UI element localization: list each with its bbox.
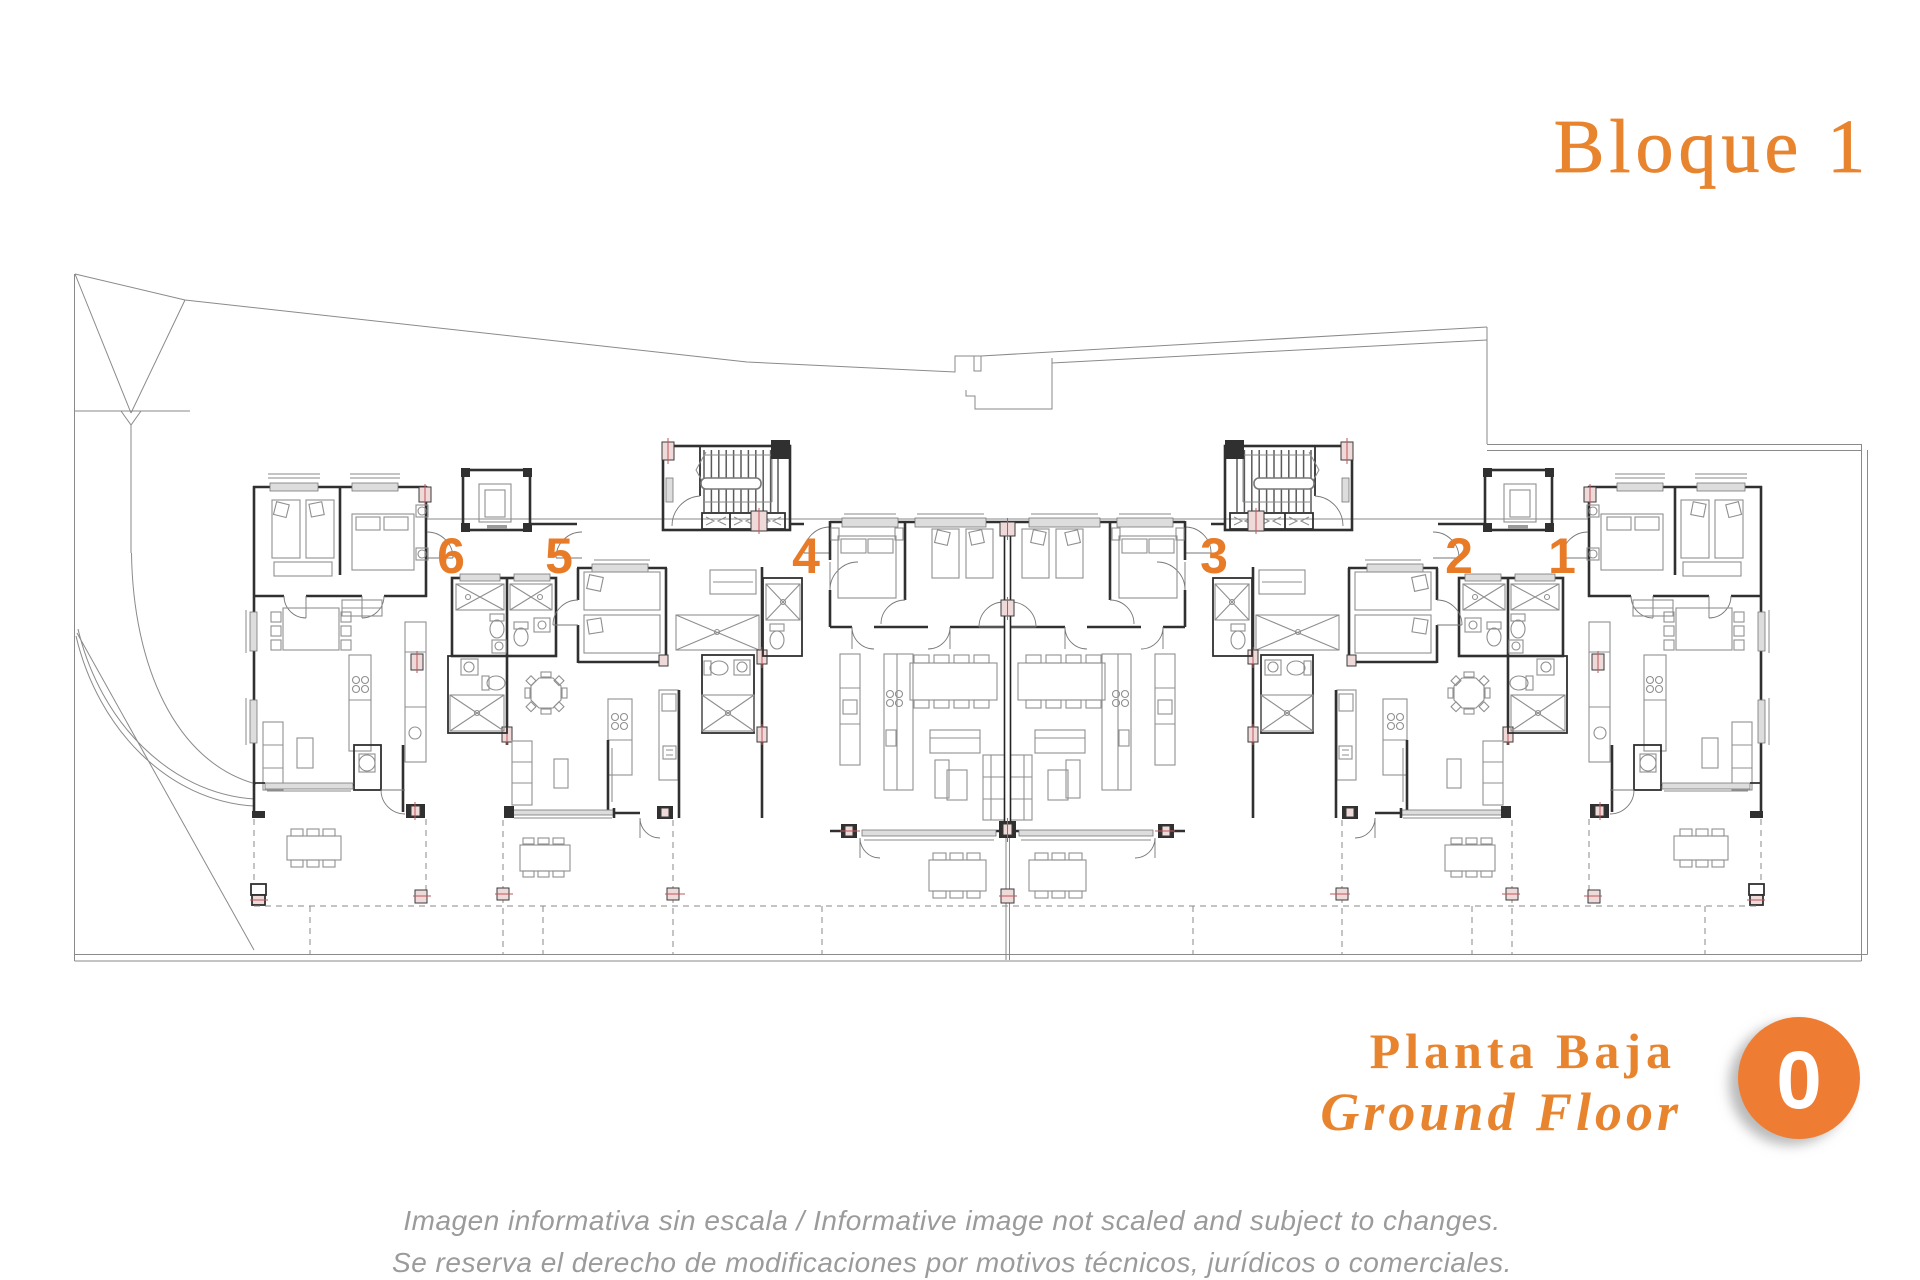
svg-text:1: 1 [1548,528,1576,584]
svg-text:3: 3 [1200,528,1228,584]
svg-text:Imagen informativa sin escala: Imagen informativa sin escala / Informat… [403,1205,1500,1236]
svg-text:6: 6 [437,528,465,584]
svg-text:4: 4 [792,528,820,584]
svg-text:Ground Floor: Ground Floor [1320,1082,1682,1142]
svg-text:Planta Baja: Planta Baja [1370,1023,1676,1079]
svg-text:Se reserva el derecho de modif: Se reserva el derecho de modificaciones … [392,1247,1512,1278]
svg-text:5: 5 [545,528,573,584]
svg-text:0: 0 [1776,1035,1822,1126]
svg-text:2: 2 [1445,528,1473,584]
svg-text:Bloque 1: Bloque 1 [1554,105,1871,189]
